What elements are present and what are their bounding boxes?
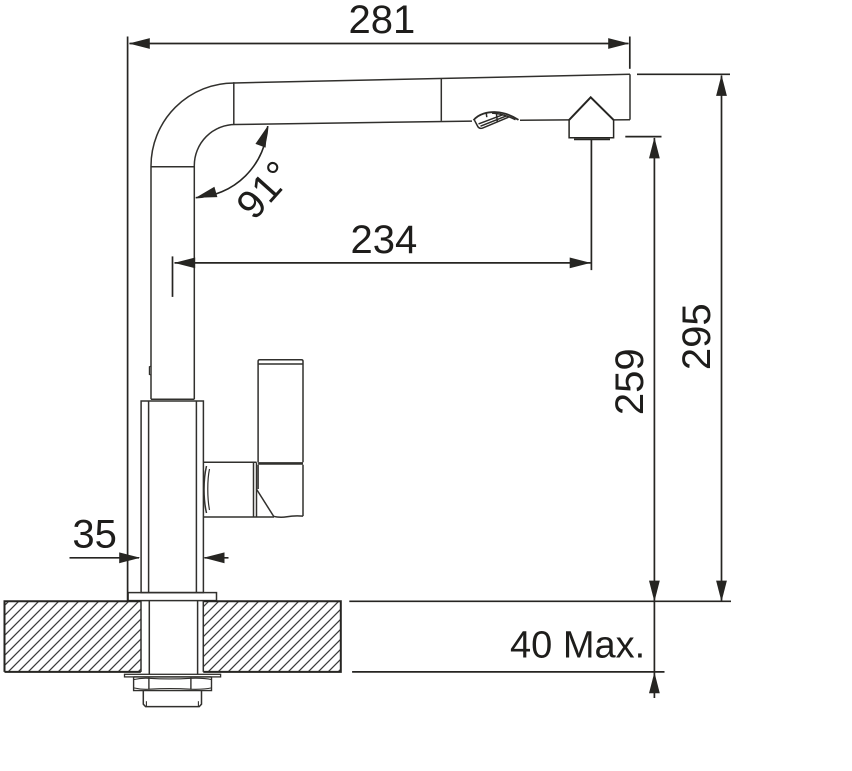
svg-text:295: 295 [675,303,719,370]
svg-text:259: 259 [608,348,652,415]
svg-text:234: 234 [351,218,418,262]
svg-text:35: 35 [72,513,117,557]
svg-text:281: 281 [349,0,416,42]
svg-text:40 Max.: 40 Max. [510,624,645,666]
